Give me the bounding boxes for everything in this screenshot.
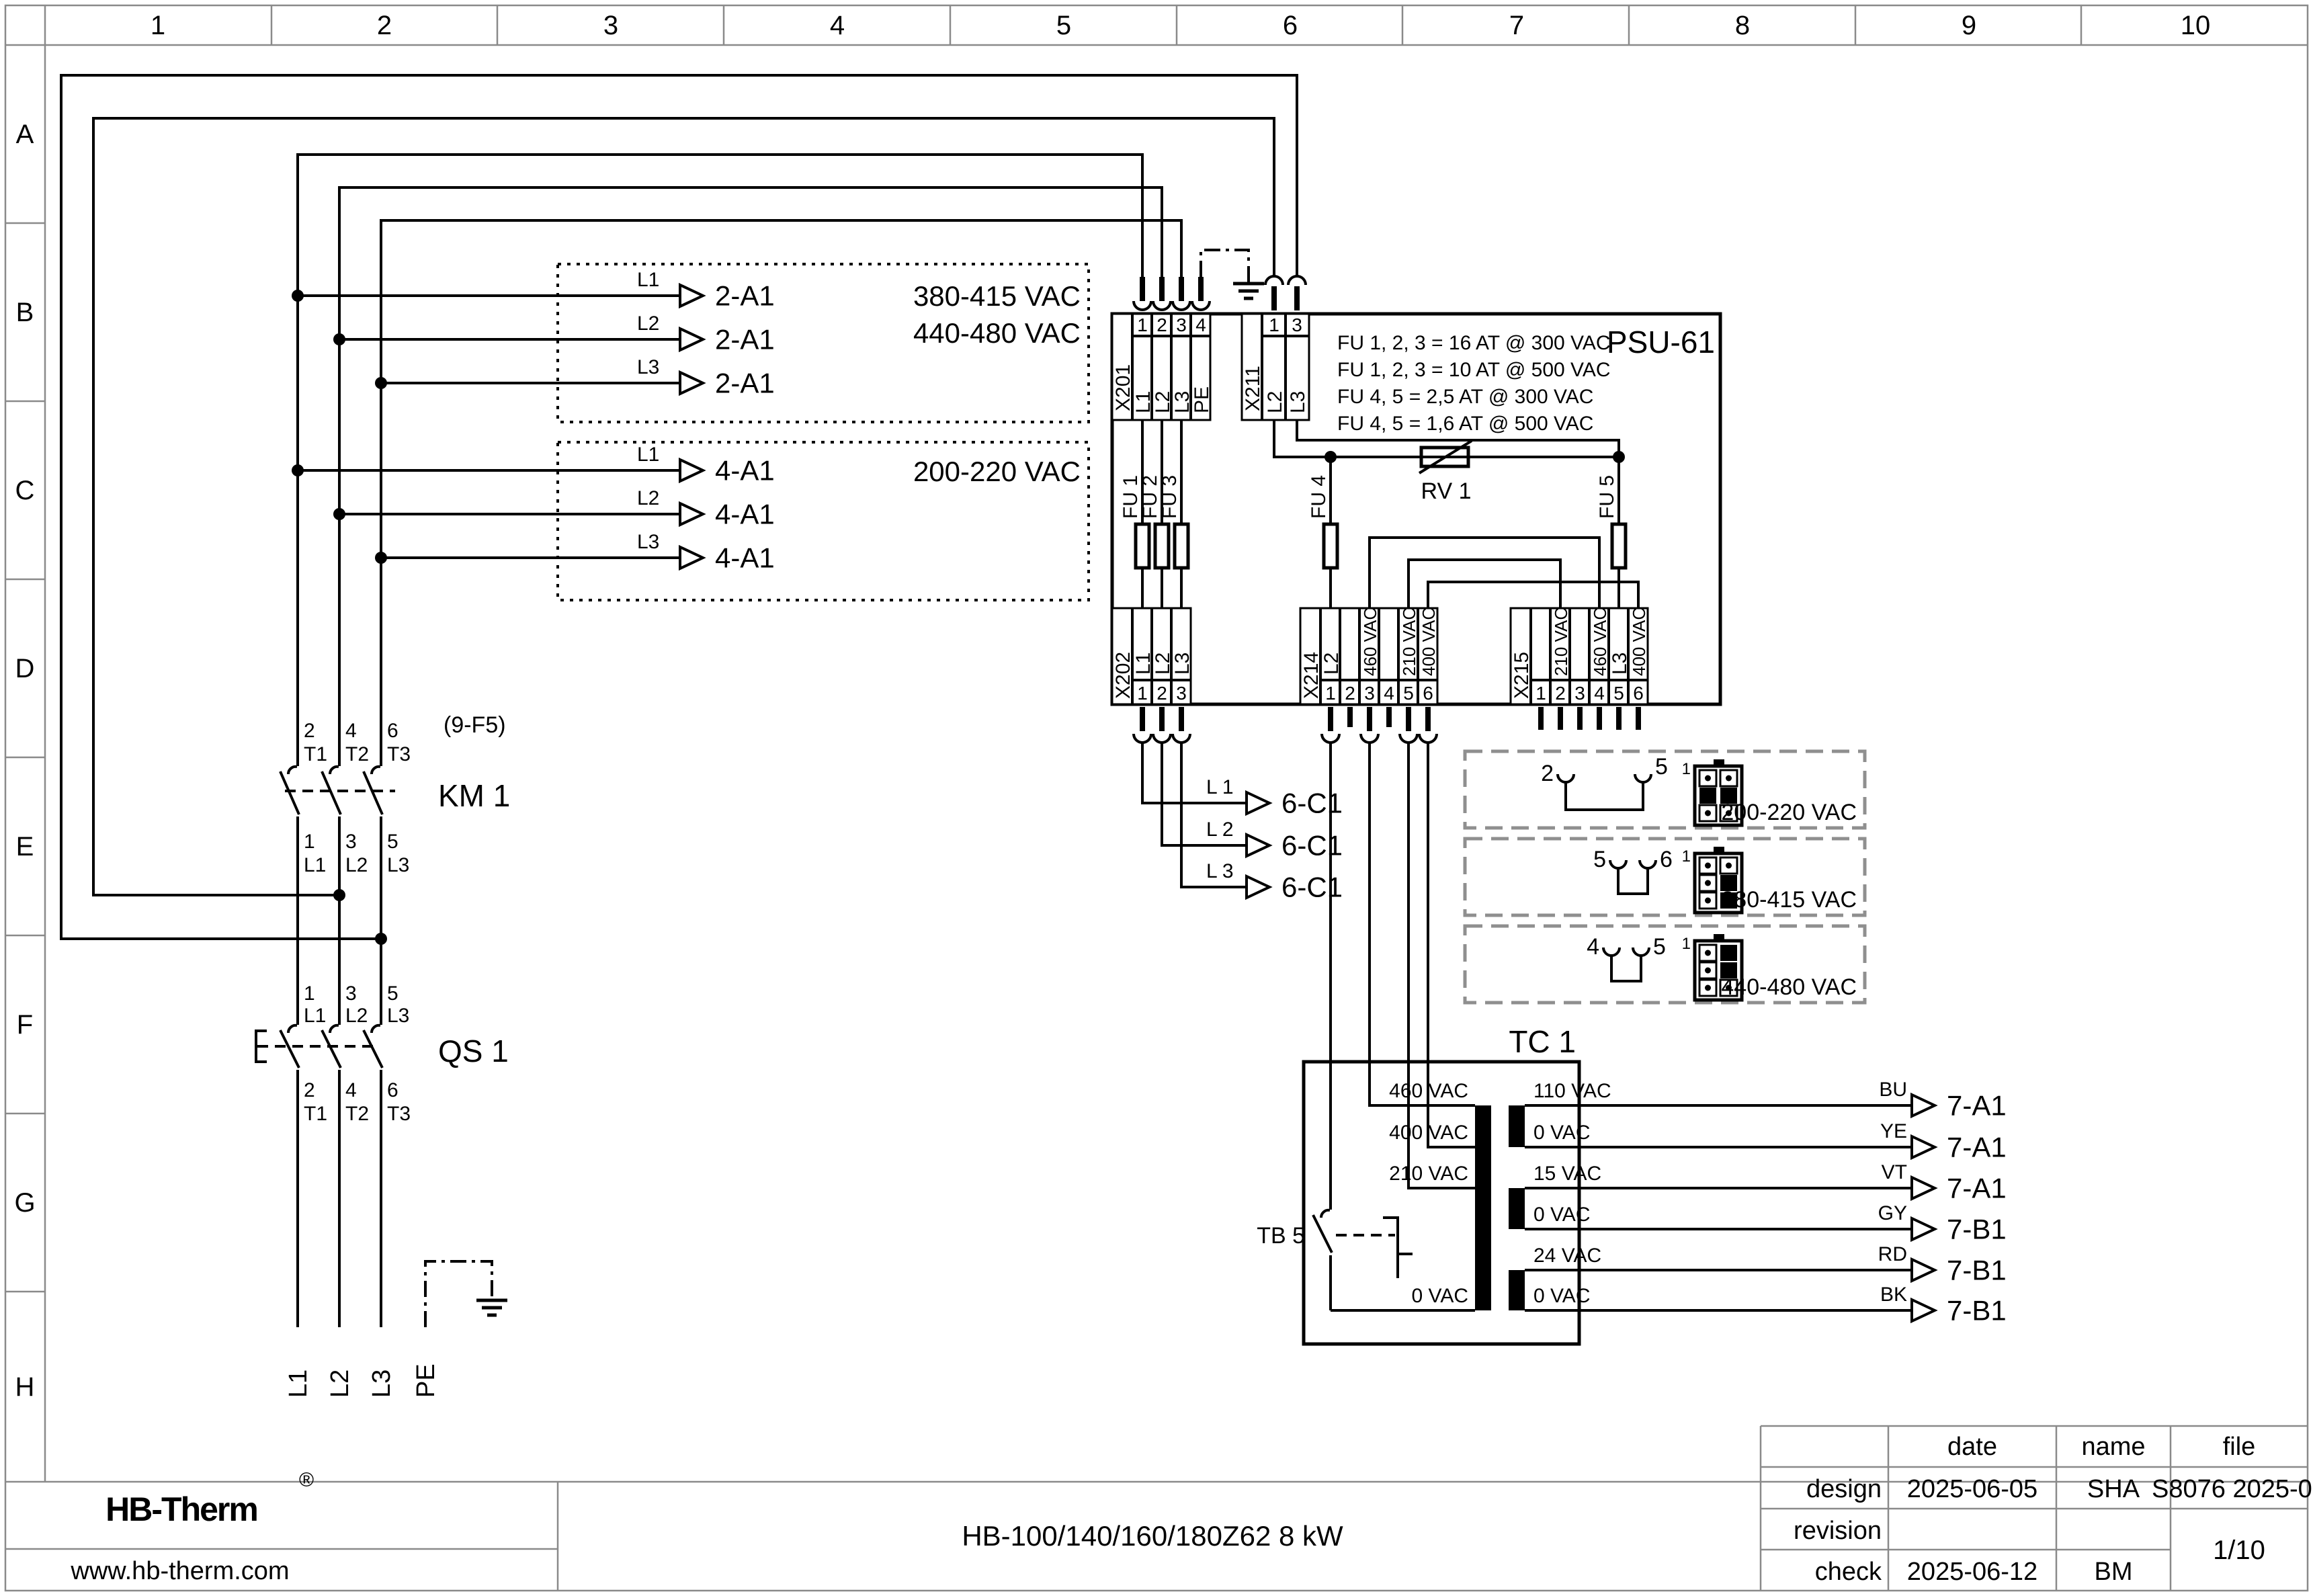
km1-name: KM 1 xyxy=(438,778,510,813)
sec-0a: 0 VAC xyxy=(1533,1122,1590,1144)
schematic-canvas: 1 2 3 4 5 6 7 8 9 10 A B C D E F G H xyxy=(0,0,2313,1596)
tc1-name: TC 1 xyxy=(1509,1024,1576,1059)
psu-name: PSU-61 xyxy=(1607,325,1715,360)
x202-connector-pins xyxy=(1134,707,1190,743)
opt3-pin1-mark: 1 xyxy=(1682,935,1691,953)
out-dest-6: 7-B1 xyxy=(1947,1295,2007,1327)
x201-name: X201 xyxy=(1112,364,1134,411)
psu-note-4: FU 4, 5 = 1,6 AT @ 500 VAC xyxy=(1337,413,1593,435)
signal-arrow xyxy=(1912,1218,1935,1240)
x202-label-L3: L3 xyxy=(1171,653,1193,675)
qs1-pin-2: 2 xyxy=(304,1079,315,1101)
x211-pin-1: 1 xyxy=(1269,314,1279,335)
signal-arrow xyxy=(1912,1259,1935,1281)
grid-col-4: 4 xyxy=(830,11,845,40)
wire-color-YE: YE xyxy=(1880,1120,1907,1142)
x201-pin-4: 4 xyxy=(1195,314,1206,335)
drawing-title: HB-100/140/160/180Z62 8 kW xyxy=(962,1520,1343,1552)
col-header-name: name xyxy=(2081,1433,2145,1461)
website-text: www.hb-therm.com xyxy=(70,1557,289,1585)
hv-volt-range-2: 440-480 VAC xyxy=(913,317,1081,349)
x214-x215-links xyxy=(1370,538,1638,608)
hv-phase-L1: L1 xyxy=(637,269,659,291)
opt2-jumper-b: 6 xyxy=(1660,847,1673,872)
x211-connector-pins xyxy=(1265,276,1306,310)
x214-terminal-strip: X214 1 2 3 4 5 6 L2 460 VAC 210 VAC 400 … xyxy=(1300,607,1439,704)
x211-terminal-strip: X211 1 3 L2 L3 xyxy=(1242,314,1309,420)
signal-arrow xyxy=(680,460,703,481)
col-header-file: file xyxy=(2223,1433,2256,1461)
row-label-check: check xyxy=(1815,1558,1882,1586)
tc1-output-arrows: BU YE VT GY RD BK 7-A1 7-A1 7-A1 7-B1 7-… xyxy=(1878,1079,2007,1327)
opt3-label: 440-480 VAC xyxy=(1721,974,1857,1000)
x214-pin-3: 3 xyxy=(1364,683,1375,704)
x211-label-L3: L3 xyxy=(1287,391,1309,413)
incoming-L2: L2 xyxy=(326,1370,354,1398)
opt2-jumper-a: 5 xyxy=(1593,847,1606,872)
lv-dest-3: 4-A1 xyxy=(715,542,775,574)
opt1-label: 200-220 VAC xyxy=(1721,800,1857,825)
psu-note-1: FU 1, 2, 3 = 16 AT @ 300 VAC xyxy=(1337,332,1611,354)
x214-label-3: 460 VAC xyxy=(1360,607,1380,676)
km1-pin-1: 1 xyxy=(304,831,315,853)
lv-volt-range: 200-220 VAC xyxy=(913,456,1081,487)
x215-pin-1: 1 xyxy=(1536,683,1546,704)
drawing-frame: 1 2 3 4 5 6 7 8 9 10 A B C D E F G H xyxy=(5,5,2308,1591)
check-name: BM xyxy=(2095,1558,2133,1586)
km1-label-L1: L1 xyxy=(304,854,326,876)
design-date: 2025-06-05 xyxy=(1907,1475,2037,1503)
sec-24: 24 VAC xyxy=(1533,1245,1601,1267)
logo-registered-mark: ® xyxy=(299,1469,314,1491)
x215-terminal-strip: X215 1 2 3 4 5 6 210 VAC 460 VAC L3 400 … xyxy=(1511,607,1649,704)
x202-pin-2: 2 xyxy=(1156,683,1167,704)
grid-col-2: 2 xyxy=(377,11,392,40)
opt3-jumper-b: 5 xyxy=(1653,934,1666,960)
rv1-label: RV 1 xyxy=(1421,478,1472,504)
schematic-page: 1 2 3 4 5 6 7 8 9 10 A B C D E F G H xyxy=(0,0,2313,1596)
cout-dest-3: 6-C1 xyxy=(1281,872,1343,903)
x215-pin-5: 5 xyxy=(1613,683,1624,704)
x214-label-1: L2 xyxy=(1320,653,1343,675)
qs1-pin-3: 3 xyxy=(345,982,357,1005)
hv-phase-L2: L2 xyxy=(637,312,659,335)
x201-connector-pins xyxy=(1134,277,1210,310)
km1-cross-ref: (9-F5) xyxy=(444,712,506,738)
grid-col-10: 10 xyxy=(2181,11,2211,40)
qs1-label-T2: T2 xyxy=(345,1103,369,1125)
grid-col-1: 1 xyxy=(151,11,165,40)
option-box-440-480: 4 5 1 440-480 VAC xyxy=(1465,926,1865,1003)
incoming-L3: L3 xyxy=(368,1370,396,1398)
grid-row-F: F xyxy=(17,1010,33,1040)
grid-row-B: B xyxy=(16,298,34,327)
grid-column-labels: 1 2 3 4 5 6 7 8 9 10 xyxy=(151,11,2210,40)
x214-connector-pins xyxy=(1322,707,1437,743)
file-id: S8076 2025-06 xyxy=(2152,1475,2313,1503)
x202-pin-1: 1 xyxy=(1137,683,1148,704)
signal-arrow xyxy=(680,329,703,350)
psu-note-2: FU 1, 2, 3 = 10 AT @ 500 VAC xyxy=(1337,359,1611,381)
feed-box-lv: L1 L2 L3 4-A1 4-A1 4-A1 200-220 VAC xyxy=(558,442,1089,600)
cout-phase-L2: L 2 xyxy=(1206,818,1234,841)
out-dest-5: 7-B1 xyxy=(1947,1255,2007,1286)
fu3-label: FU 3 xyxy=(1159,475,1181,519)
x215-name: X215 xyxy=(1511,652,1533,699)
opt1-pin1-mark: 1 xyxy=(1682,760,1691,778)
signal-arrow xyxy=(680,547,703,569)
grid-row-D: D xyxy=(15,654,35,683)
wire-color-RD: RD xyxy=(1878,1243,1907,1265)
incoming-PE: PE xyxy=(412,1363,440,1398)
out-dest-4: 7-B1 xyxy=(1947,1214,2007,1245)
design-name: SHA xyxy=(2087,1475,2140,1503)
fuses-fu1-3: FU 1 FU 2 FU 3 xyxy=(1120,420,1188,608)
out-dest-1: 7-A1 xyxy=(1947,1090,2007,1122)
km1-label-L3: L3 xyxy=(387,854,409,876)
signal-arrow xyxy=(1912,1300,1935,1321)
hv-phase-L3: L3 xyxy=(637,356,659,378)
wire-color-BK: BK xyxy=(1880,1284,1907,1306)
hv-dest-2: 2-A1 xyxy=(715,324,775,355)
contactor-km1: 2 4 6 T1 T2 T3 1 3 5 L1 L2 L3 (9-F5) KM … xyxy=(280,712,510,876)
km1-contacts xyxy=(280,767,395,814)
grid-row-G: G xyxy=(14,1188,35,1218)
x215-pin-6: 6 xyxy=(1633,683,1644,704)
title-block: HB-Therm ® www.hb-therm.com HB-100/140/1… xyxy=(5,1426,2313,1591)
sec-0b: 0 VAC xyxy=(1533,1204,1590,1226)
option-box-380-415: 5 6 1 380-415 VAC xyxy=(1465,839,1865,915)
grid-row-H: H xyxy=(15,1372,35,1402)
x215-label-2: 210 VAC xyxy=(1551,607,1571,676)
qs1-label-L2: L2 xyxy=(345,1005,368,1027)
feed-box-hv: L1 L2 L3 2-A1 2-A1 2-A1 380-415 VAC 440-… xyxy=(558,264,1089,422)
sec-110: 110 VAC xyxy=(1533,1080,1611,1102)
incoming-terminal-labels: L1 L2 L3 PE xyxy=(284,1363,440,1398)
lv-phase-L3: L3 xyxy=(637,531,659,553)
x214-pin-5: 5 xyxy=(1403,683,1414,704)
km1-label-T1: T1 xyxy=(304,743,327,765)
page-number: 1/10 xyxy=(2213,1536,2265,1565)
wire-color-BU: BU xyxy=(1879,1079,1907,1101)
lv-phase-L1: L1 xyxy=(637,444,659,466)
signal-arrow xyxy=(1247,876,1269,898)
x214-pin-1: 1 xyxy=(1325,683,1336,704)
x214-pin-4: 4 xyxy=(1384,683,1394,704)
km1-label-T3: T3 xyxy=(387,743,411,765)
x214-label-5: 210 VAC xyxy=(1399,607,1419,676)
cout-dest-2: 6-C1 xyxy=(1281,830,1343,862)
signal-arrow xyxy=(1912,1136,1935,1158)
grid-row-labels: A B C D E F G H xyxy=(14,120,35,1402)
x201-pin-2: 2 xyxy=(1156,314,1167,335)
psu-61: PSU-61 FU 1, 2, 3 = 16 AT @ 300 VAC FU 1… xyxy=(1112,250,1720,743)
x214-label-6: 400 VAC xyxy=(1419,607,1439,676)
x211-pin-3: 3 xyxy=(1292,314,1302,335)
x215-pin-3: 3 xyxy=(1574,683,1585,704)
tap-0: 0 VAC xyxy=(1412,1285,1468,1307)
qs1-label-L1: L1 xyxy=(304,1005,326,1027)
opt1-jumper-b: 5 xyxy=(1655,754,1668,780)
x201-terminal-strip: X201 1 2 3 4 L1 L2 L3 PE xyxy=(1112,314,1213,420)
signal-arrow xyxy=(680,503,703,525)
qs1-contacts xyxy=(256,1025,382,1068)
x215-pin-2: 2 xyxy=(1555,683,1566,704)
cout-phase-L3: L 3 xyxy=(1206,860,1234,882)
ground-symbol-bottom xyxy=(476,1300,507,1315)
opt1-jumper-a: 2 xyxy=(1541,761,1554,786)
sec-15: 15 VAC xyxy=(1533,1163,1601,1185)
signal-arrow xyxy=(680,285,703,306)
row-label-design: design xyxy=(1806,1475,1882,1503)
signal-arrow xyxy=(680,372,703,394)
km1-pin-4: 4 xyxy=(345,720,357,742)
hv-volt-range-1: 380-415 VAC xyxy=(913,280,1081,312)
cout-dest-1: 6-C1 xyxy=(1281,788,1343,819)
x215-connector-pins xyxy=(1538,707,1641,730)
qs1-pin-5: 5 xyxy=(387,982,398,1005)
x201-pin-1: 1 xyxy=(1137,314,1148,335)
x202-terminal-strip: X202 1 2 3 L1 L2 L3 xyxy=(1112,608,1193,704)
check-date: 2025-06-12 xyxy=(1907,1558,2037,1586)
x215-pin-4: 4 xyxy=(1594,683,1605,704)
grid-col-9: 9 xyxy=(1962,11,1976,40)
x201-label-PE: PE xyxy=(1191,386,1213,413)
km1-pin-6: 6 xyxy=(387,720,398,742)
signal-arrow xyxy=(1912,1095,1935,1116)
grid-row-ticks xyxy=(5,223,45,1292)
signal-arrow xyxy=(1247,792,1269,814)
qs1-pin-6: 6 xyxy=(387,1079,398,1101)
option-box-200-220: 2 5 1 200-220 VAC xyxy=(1465,751,1865,828)
x214-pin-2: 2 xyxy=(1345,683,1355,704)
qs1-label-T3: T3 xyxy=(387,1103,411,1125)
wire-color-GY: GY xyxy=(1878,1202,1907,1224)
tb5-label: TB 5 xyxy=(1257,1223,1305,1249)
wire-color-VT: VT xyxy=(1882,1161,1907,1183)
qs1-label-L3: L3 xyxy=(387,1005,409,1027)
x201-pin-3: 3 xyxy=(1176,314,1187,335)
grid-col-8: 8 xyxy=(1735,11,1750,40)
qs1-pin-1: 1 xyxy=(304,982,315,1005)
km1-pin-5: 5 xyxy=(387,831,398,853)
ground-symbol-top xyxy=(1233,284,1264,298)
opt2-label: 380-415 VAC xyxy=(1721,887,1857,913)
tap-460: 460 VAC xyxy=(1389,1080,1468,1102)
psu-fuse-notes: FU 1, 2, 3 = 16 AT @ 300 VAC FU 1, 2, 3 … xyxy=(1337,332,1611,435)
km1-label-L2: L2 xyxy=(345,854,368,876)
tc1-secondary-windings xyxy=(1509,1105,1525,1310)
out-dest-2: 7-A1 xyxy=(1947,1132,2007,1163)
x215-label-4: 460 VAC xyxy=(1590,607,1610,676)
transformer-tc1: TC 1 TB 5 460 VAC 400 V xyxy=(1257,743,2007,1344)
row-label-revision: revision xyxy=(1794,1517,1882,1545)
rv1-varistor-circuit: FU 4 RV 1 FU 5 xyxy=(1274,420,1626,608)
voltage-option-boxes: 2 5 1 200-220 VAC 5 6 1 xyxy=(1465,751,1865,1003)
logo-text: HB-Therm xyxy=(106,1490,257,1528)
grid-row-C: C xyxy=(15,476,35,505)
x214-pin-6: 6 xyxy=(1423,683,1433,704)
control-outputs-6c1: L 1 L 2 L 3 6-C1 6-C1 6-C1 xyxy=(1142,743,1343,903)
opt2-pin1-mark: 1 xyxy=(1682,847,1691,866)
psu-note-3: FU 4, 5 = 2,5 AT @ 300 VAC xyxy=(1337,386,1593,408)
incoming-L1: L1 xyxy=(284,1370,312,1398)
grid-col-7: 7 xyxy=(1509,11,1524,40)
tc1-primary-winding xyxy=(1475,1105,1491,1310)
signal-arrow xyxy=(1912,1177,1935,1199)
brand-logo: HB-Therm ® xyxy=(106,1469,314,1528)
signal-arrow xyxy=(1247,835,1269,856)
km1-label-T2: T2 xyxy=(345,743,369,765)
fu5-label: FU 5 xyxy=(1596,475,1618,519)
x202-name: X202 xyxy=(1112,652,1134,699)
qs1-name: QS 1 xyxy=(438,1034,509,1068)
hv-dest-3: 2-A1 xyxy=(715,368,775,399)
out-dest-3: 7-A1 xyxy=(1947,1173,2007,1204)
lv-dest-2: 4-A1 xyxy=(715,499,775,530)
x211-label-L2: L2 xyxy=(1264,391,1286,413)
pe-jumper-wire xyxy=(1201,250,1249,282)
grid-row-E: E xyxy=(16,832,34,862)
opt3-jumper-a: 4 xyxy=(1587,934,1599,960)
grid-col-5: 5 xyxy=(1056,11,1071,40)
cout-phase-L1: L 1 xyxy=(1206,776,1234,798)
km1-pin-3: 3 xyxy=(345,831,357,853)
fu4-label: FU 4 xyxy=(1308,475,1330,519)
lv-phase-L2: L2 xyxy=(637,487,659,509)
lv-dest-1: 4-A1 xyxy=(715,455,775,487)
x211-name: X211 xyxy=(1242,366,1264,411)
grid-col-6: 6 xyxy=(1283,11,1298,40)
hv-dest-1: 2-A1 xyxy=(715,280,775,312)
sec-0c: 0 VAC xyxy=(1533,1285,1590,1307)
tap-400: 400 VAC xyxy=(1389,1122,1468,1144)
qs1-pin-4: 4 xyxy=(345,1079,357,1101)
grid-col-3: 3 xyxy=(603,11,618,40)
tc1-secondary-tap-labels: 110 VAC 0 VAC 15 VAC 0 VAC 24 VAC 0 VAC xyxy=(1533,1080,1611,1307)
col-header-date: date xyxy=(1947,1433,1997,1461)
qs1-label-T1: T1 xyxy=(304,1103,327,1125)
x214-name: X214 xyxy=(1300,652,1322,699)
x202-pin-3: 3 xyxy=(1176,683,1187,704)
tap-210: 210 VAC xyxy=(1389,1163,1468,1185)
grid-column-ticks xyxy=(271,5,2081,45)
tb5-thermal-breaker: TB 5 xyxy=(1257,1210,1413,1310)
x215-label-5: L3 xyxy=(1609,653,1631,675)
x215-label-6: 400 VAC xyxy=(1629,607,1649,676)
grid-row-A: A xyxy=(16,120,34,149)
km1-pin-2: 2 xyxy=(304,720,315,742)
